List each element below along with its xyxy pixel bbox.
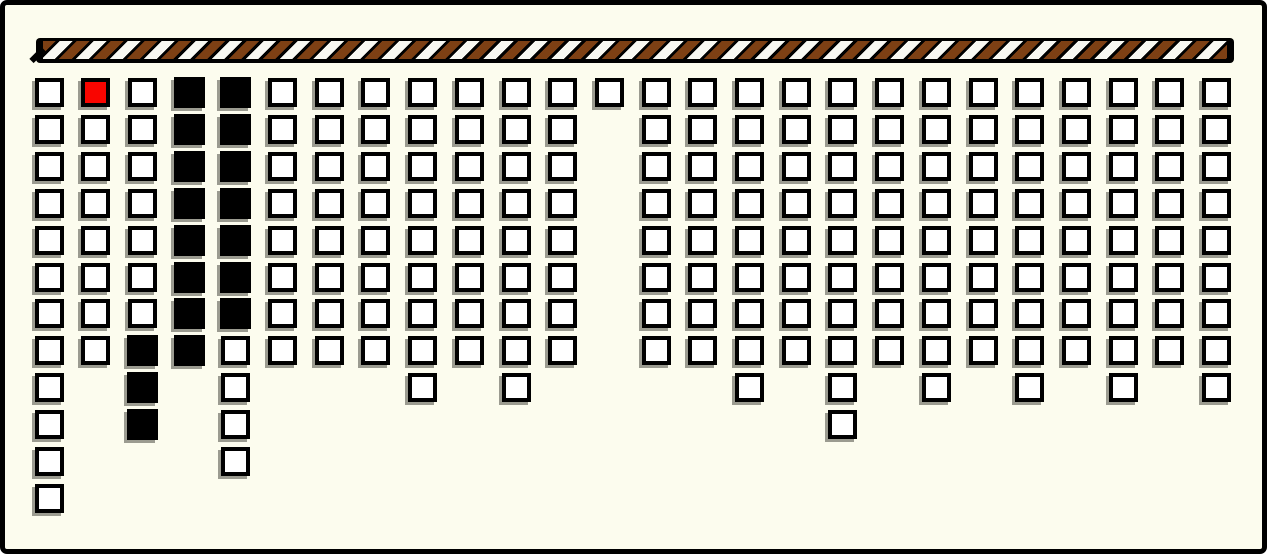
grid-cell[interactable]: [128, 263, 157, 292]
grid-cell[interactable]: [782, 189, 811, 218]
grid-cell[interactable]: [782, 336, 811, 365]
grid-cell[interactable]: [361, 336, 390, 365]
grid-cell[interactable]: [1202, 299, 1231, 328]
grid-cell[interactable]: [875, 152, 904, 181]
grid-cell[interactable]: [735, 336, 764, 365]
grid-cell[interactable]: [315, 78, 344, 107]
grid-cell[interactable]: [875, 336, 904, 365]
grid-cell[interactable]: [315, 189, 344, 218]
grid-cell[interactable]: [174, 225, 205, 256]
grid-cell[interactable]: [1015, 373, 1044, 402]
grid-cell[interactable]: [548, 336, 577, 365]
grid-cell[interactable]: [502, 189, 531, 218]
grid-cell[interactable]: [688, 226, 717, 255]
grid-cell[interactable]: [174, 188, 205, 219]
grid-cell[interactable]: [969, 115, 998, 144]
grid-cell[interactable]: [828, 189, 857, 218]
grid-cell[interactable]: [127, 372, 158, 403]
grid-cell[interactable]: [268, 115, 297, 144]
grid-cell[interactable]: [922, 189, 951, 218]
grid-cell[interactable]: [408, 78, 437, 107]
grid-cell[interactable]: [220, 151, 251, 182]
grid-cell[interactable]: [642, 115, 671, 144]
grid-cell[interactable]: [922, 373, 951, 402]
grid-cell[interactable]: [1062, 78, 1091, 107]
grid-cell[interactable]: [688, 336, 717, 365]
grid-cell[interactable]: [828, 373, 857, 402]
grid-cell[interactable]: [81, 115, 110, 144]
grid-cell[interactable]: [128, 189, 157, 218]
grid-cell[interactable]: [35, 373, 64, 402]
grid-cell[interactable]: [735, 373, 764, 402]
grid-cell[interactable]: [1062, 115, 1091, 144]
grid-cell[interactable]: [128, 115, 157, 144]
grid-cell[interactable]: [828, 78, 857, 107]
grid-cell[interactable]: [128, 226, 157, 255]
grid-cell[interactable]: [548, 263, 577, 292]
grid-cell[interactable]: [735, 189, 764, 218]
grid-cell[interactable]: [1062, 226, 1091, 255]
grid-cell[interactable]: [548, 78, 577, 107]
grid-cell[interactable]: [1015, 78, 1044, 107]
grid-cell[interactable]: [408, 115, 437, 144]
grid-cell[interactable]: [1202, 152, 1231, 181]
grid-cell[interactable]: [642, 78, 671, 107]
grid-cell[interactable]: [35, 484, 64, 513]
grid-cell[interactable]: [1202, 336, 1231, 365]
grid-cell[interactable]: [455, 263, 484, 292]
grid-cell[interactable]: [735, 299, 764, 328]
grid-cell[interactable]: [642, 152, 671, 181]
grid-cell[interactable]: [1202, 373, 1231, 402]
grid-cell[interactable]: [128, 152, 157, 181]
grid-cell[interactable]: [268, 152, 297, 181]
grid-cell[interactable]: [1109, 299, 1138, 328]
grid-cell[interactable]: [735, 115, 764, 144]
grid-cell[interactable]: [688, 152, 717, 181]
grid-cell[interactable]: [455, 152, 484, 181]
grid-cell[interactable]: [361, 226, 390, 255]
grid-cell[interactable]: [782, 152, 811, 181]
grid-cell[interactable]: [315, 226, 344, 255]
grid-cell[interactable]: [35, 336, 64, 365]
grid-cell[interactable]: [1062, 263, 1091, 292]
grid-cell[interactable]: [688, 115, 717, 144]
grid-cell[interactable]: [35, 299, 64, 328]
grid-cell[interactable]: [220, 188, 251, 219]
grid-cell[interactable]: [1155, 152, 1184, 181]
grid-cell[interactable]: [315, 336, 344, 365]
grid-cell[interactable]: [969, 78, 998, 107]
grid-cell[interactable]: [127, 409, 158, 440]
grid-cell[interactable]: [782, 78, 811, 107]
grid-cell[interactable]: [688, 299, 717, 328]
grid-cell[interactable]: [502, 115, 531, 144]
grid-cell[interactable]: [220, 225, 251, 256]
grid-cell[interactable]: [642, 299, 671, 328]
grid-cell[interactable]: [1015, 115, 1044, 144]
grid-cell[interactable]: [128, 78, 157, 107]
grid-cell[interactable]: [502, 299, 531, 328]
grid-cell[interactable]: [502, 152, 531, 181]
block-grid: [5, 5, 1262, 549]
grid-cell[interactable]: [361, 152, 390, 181]
grid-cell[interactable]: [828, 115, 857, 144]
grid-cell[interactable]: [922, 78, 951, 107]
grid-cell[interactable]: [782, 299, 811, 328]
grid-cell[interactable]: [268, 189, 297, 218]
grid-cell[interactable]: [221, 336, 250, 365]
grid-cell[interactable]: [81, 336, 110, 365]
grid-cell[interactable]: [1109, 152, 1138, 181]
grid-cell[interactable]: [828, 336, 857, 365]
grid-cell[interactable]: [735, 152, 764, 181]
grid-cell[interactable]: [315, 263, 344, 292]
grid-cell[interactable]: [922, 299, 951, 328]
grid-cell[interactable]: [875, 299, 904, 328]
grid-cell[interactable]: [1155, 189, 1184, 218]
grid-cell[interactable]: [174, 77, 205, 108]
grid-cell[interactable]: [548, 189, 577, 218]
grid-cell[interactable]: [1062, 299, 1091, 328]
grid-cell[interactable]: [548, 299, 577, 328]
grid-cell[interactable]: [221, 410, 250, 439]
grid-cell[interactable]: [1062, 336, 1091, 365]
grid-cell[interactable]: [828, 410, 857, 439]
grid-cell[interactable]: [408, 336, 437, 365]
grid-cell[interactable]: [595, 78, 624, 107]
grid-cell[interactable]: [1155, 78, 1184, 107]
grid-cell[interactable]: [268, 299, 297, 328]
grid-cell[interactable]: [1015, 336, 1044, 365]
grid-cell[interactable]: [35, 115, 64, 144]
grid-cell[interactable]: [875, 226, 904, 255]
grid-cell[interactable]: [1015, 263, 1044, 292]
grid-cell[interactable]: [1109, 336, 1138, 365]
grid-cell[interactable]: [268, 263, 297, 292]
grid-cell[interactable]: [502, 336, 531, 365]
grid-cell[interactable]: [361, 263, 390, 292]
grid-cell[interactable]: [35, 78, 64, 107]
grid-cell[interactable]: [502, 78, 531, 107]
grid-cell[interactable]: [1155, 263, 1184, 292]
grid-cell[interactable]: [922, 336, 951, 365]
grid-cell[interactable]: [455, 115, 484, 144]
grid-cell[interactable]: [688, 189, 717, 218]
grid-cell[interactable]: [408, 152, 437, 181]
grid-cell[interactable]: [81, 189, 110, 218]
grid-cell[interactable]: [735, 78, 764, 107]
grid-cell[interactable]: [1109, 373, 1138, 402]
grid-cell[interactable]: [922, 115, 951, 144]
grid-cell[interactable]: [315, 299, 344, 328]
grid-cell[interactable]: [35, 410, 64, 439]
grid-cell[interactable]: [922, 152, 951, 181]
grid-cell[interactable]: [735, 226, 764, 255]
grid-cell[interactable]: [1062, 152, 1091, 181]
grid-cell[interactable]: [548, 115, 577, 144]
grid-cell[interactable]: [548, 152, 577, 181]
grid-cell[interactable]: [220, 77, 251, 108]
grid-cell[interactable]: [361, 299, 390, 328]
grid-cell[interactable]: [408, 299, 437, 328]
grid-cell[interactable]: [220, 114, 251, 145]
grid-cell[interactable]: [502, 263, 531, 292]
grid-cell[interactable]: [969, 226, 998, 255]
grid-cell[interactable]: [1015, 299, 1044, 328]
grid-cell[interactable]: [268, 336, 297, 365]
grid-cell[interactable]: [828, 152, 857, 181]
grid-cell[interactable]: [35, 189, 64, 218]
grid-cell[interactable]: [81, 152, 110, 181]
grid-cell[interactable]: [1062, 189, 1091, 218]
grid-cell[interactable]: [35, 226, 64, 255]
grid-cell[interactable]: [268, 226, 297, 255]
grid-cell[interactable]: [1155, 115, 1184, 144]
grid-cell[interactable]: [1015, 152, 1044, 181]
grid-cell[interactable]: [502, 373, 531, 402]
grid-cell[interactable]: [81, 299, 110, 328]
grid-cell[interactable]: [1109, 263, 1138, 292]
grid-cell[interactable]: [174, 151, 205, 182]
grid-cell[interactable]: [35, 152, 64, 181]
grid-cell[interactable]: [35, 263, 64, 292]
grid-cell[interactable]: [548, 226, 577, 255]
grid-cell[interactable]: [782, 115, 811, 144]
grid-cell[interactable]: [174, 335, 205, 366]
grid-cell[interactable]: [1202, 189, 1231, 218]
grid-cell[interactable]: [1015, 189, 1044, 218]
grid-cell[interactable]: [455, 226, 484, 255]
grid-cell[interactable]: [221, 447, 250, 476]
grid-cell[interactable]: [1202, 263, 1231, 292]
grid-cell[interactable]: [268, 78, 297, 107]
grid-cell[interactable]: [81, 263, 110, 292]
grid-cell-selected[interactable]: [81, 78, 110, 107]
grid-cell[interactable]: [35, 447, 64, 476]
grid-cell[interactable]: [81, 226, 110, 255]
grid-cell[interactable]: [1015, 226, 1044, 255]
grid-cell[interactable]: [174, 298, 205, 329]
grid-cell[interactable]: [875, 78, 904, 107]
grid-cell[interactable]: [455, 189, 484, 218]
grid-cell[interactable]: [875, 189, 904, 218]
grid-cell[interactable]: [455, 299, 484, 328]
grid-cell[interactable]: [875, 263, 904, 292]
grid-cell[interactable]: [502, 226, 531, 255]
grid-cell[interactable]: [408, 373, 437, 402]
grid-cell[interactable]: [642, 189, 671, 218]
grid-cell[interactable]: [642, 226, 671, 255]
grid-cell[interactable]: [1202, 115, 1231, 144]
grid-cell[interactable]: [969, 263, 998, 292]
grid-cell[interactable]: [688, 78, 717, 107]
grid-cell[interactable]: [922, 226, 951, 255]
grid-cell[interactable]: [782, 263, 811, 292]
grid-cell[interactable]: [688, 263, 717, 292]
grid-cell[interactable]: [922, 263, 951, 292]
grid-cell[interactable]: [408, 263, 437, 292]
grid-cell[interactable]: [1109, 78, 1138, 107]
grid-cell[interactable]: [408, 189, 437, 218]
grid-cell[interactable]: [969, 299, 998, 328]
grid-cell[interactable]: [782, 226, 811, 255]
grid-cell[interactable]: [315, 152, 344, 181]
grid-cell[interactable]: [220, 262, 251, 293]
grid-cell[interactable]: [361, 78, 390, 107]
grid-cell[interactable]: [221, 373, 250, 402]
grid-cell[interactable]: [1155, 336, 1184, 365]
grid-cell[interactable]: [174, 114, 205, 145]
grid-cell[interactable]: [1155, 226, 1184, 255]
grid-cell[interactable]: [315, 115, 344, 144]
grid-cell[interactable]: [1109, 115, 1138, 144]
grid-cell[interactable]: [1109, 189, 1138, 218]
grid-cell[interactable]: [455, 78, 484, 107]
grid-cell[interactable]: [127, 335, 158, 366]
grid-cell[interactable]: [969, 152, 998, 181]
grid-cell[interactable]: [1202, 226, 1231, 255]
grid-cell[interactable]: [828, 299, 857, 328]
grid-cell[interactable]: [969, 189, 998, 218]
grid-cell[interactable]: [361, 189, 390, 218]
grid-cell[interactable]: [1155, 299, 1184, 328]
grid-cell[interactable]: [1202, 78, 1231, 107]
app-window: [0, 0, 1267, 554]
grid-cell[interactable]: [455, 336, 484, 365]
grid-cell[interactable]: [642, 263, 671, 292]
grid-cell[interactable]: [875, 115, 904, 144]
grid-cell[interactable]: [128, 299, 157, 328]
grid-cell[interactable]: [735, 263, 764, 292]
grid-cell[interactable]: [828, 263, 857, 292]
grid-cell[interactable]: [408, 226, 437, 255]
grid-cell[interactable]: [174, 262, 205, 293]
grid-cell[interactable]: [361, 115, 390, 144]
grid-cell[interactable]: [642, 336, 671, 365]
grid-cell[interactable]: [1109, 226, 1138, 255]
grid-cell[interactable]: [969, 336, 998, 365]
grid-cell[interactable]: [828, 226, 857, 255]
grid-cell[interactable]: [220, 298, 251, 329]
